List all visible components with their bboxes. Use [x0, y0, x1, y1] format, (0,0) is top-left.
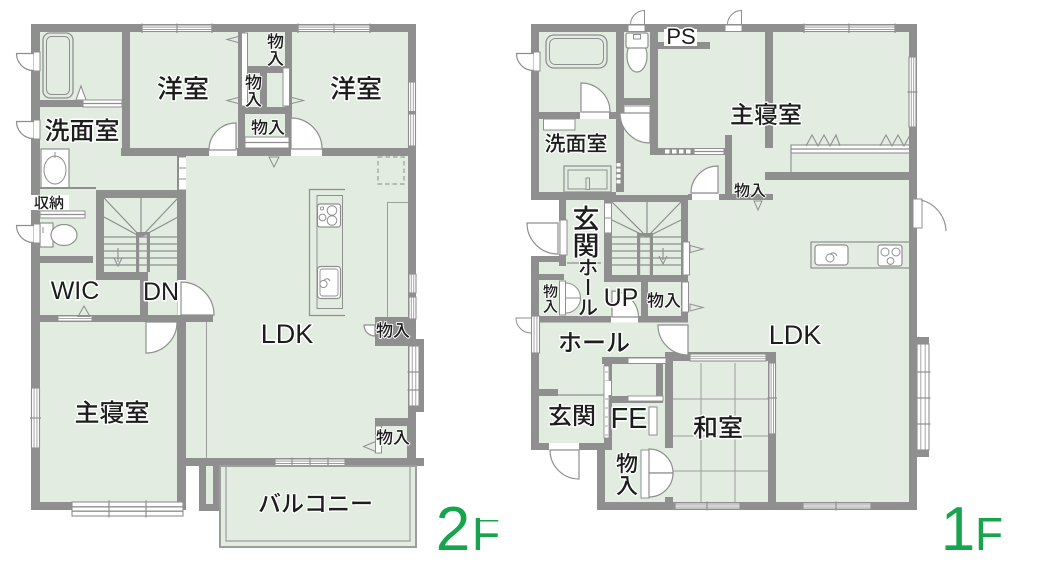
svg-text:2: 2: [436, 495, 470, 564]
svg-text:LDK: LDK: [261, 319, 314, 349]
svg-text:UP: UP: [604, 284, 639, 312]
svg-text:F: F: [975, 508, 1003, 560]
svg-text:1: 1: [941, 495, 975, 564]
svg-text:DN: DN: [143, 278, 179, 306]
svg-text:LDK: LDK: [769, 320, 822, 350]
svg-text:FE: FE: [610, 403, 647, 435]
svg-text:WIC: WIC: [51, 277, 100, 305]
svg-text:PS: PS: [666, 24, 695, 49]
